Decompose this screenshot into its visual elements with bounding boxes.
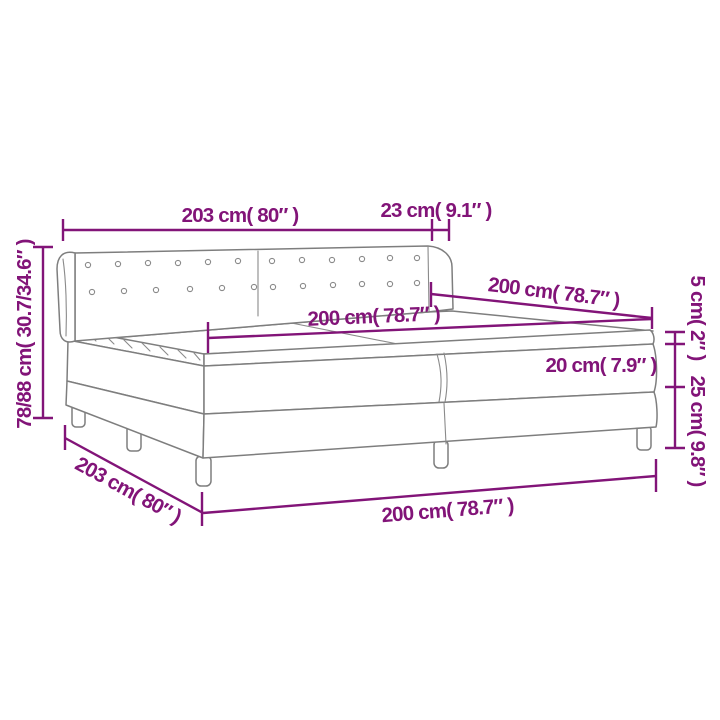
bed-leg xyxy=(196,456,211,486)
bed-dimension-diagram: 203 cm( 80″ ) 23 cm( 9.1″ ) 78/88 cm( 30… xyxy=(0,0,720,720)
label-bed-width: 200 cm( 78.7″ ) xyxy=(381,494,515,527)
label-headboard-depth: 23 cm( 9.1″ ) xyxy=(380,199,491,222)
label-pillow-top-height: 5 cm( 2″ ) xyxy=(686,276,709,361)
label-base-height: 25 cm( 9.8″ ) xyxy=(686,375,709,486)
product-dimension-image: 203 cm( 80″ ) 23 cm( 9.1″ ) 78/88 cm( 30… xyxy=(0,0,720,720)
label-headboard-width: 203 cm( 80″ ) xyxy=(182,204,299,227)
label-base-length: 203 cm( 80″ ) xyxy=(71,452,185,528)
label-mattress-height: 20 cm( 7.9″ ) xyxy=(545,354,656,377)
bed-leg xyxy=(637,426,651,450)
label-headboard-height: 78/88 cm( 30.7/34.6″ ) xyxy=(13,239,36,428)
